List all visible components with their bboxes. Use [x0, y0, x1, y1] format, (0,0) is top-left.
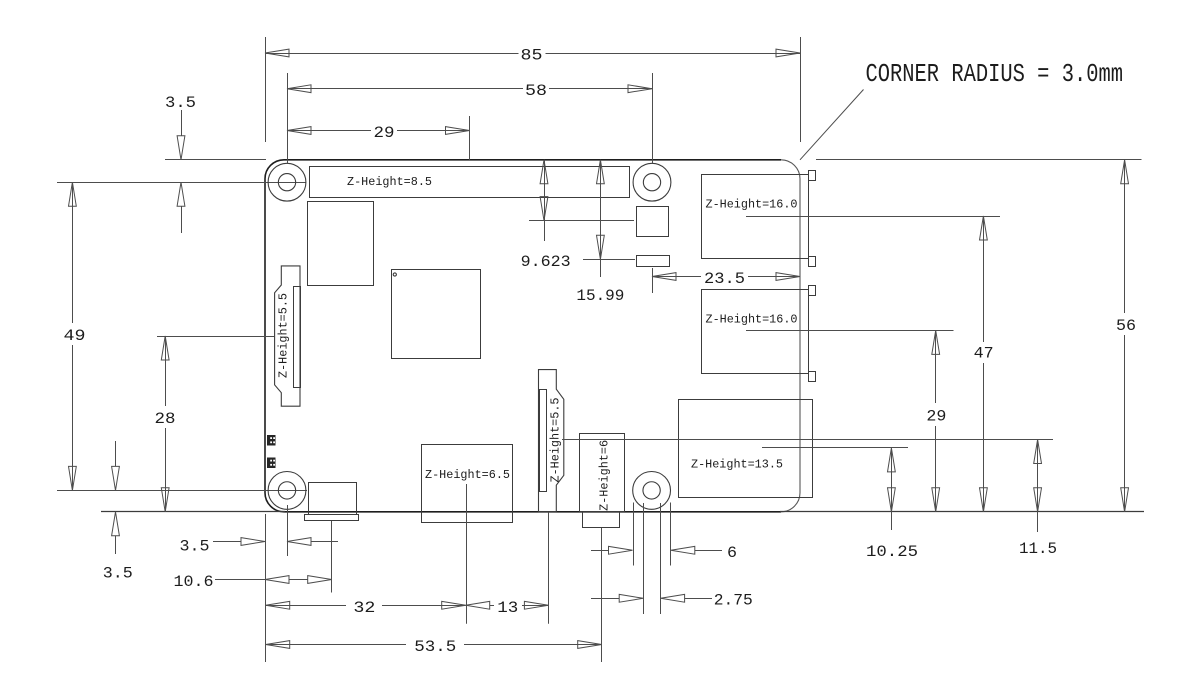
svg-text:23.5: 23.5 [704, 270, 745, 288]
svg-text:53.5: 53.5 [414, 638, 456, 656]
svg-text:15.99: 15.99 [576, 287, 624, 305]
svg-text:Z-Height=16.0: Z-Height=16.0 [706, 198, 798, 212]
svg-text:Z-Height=8.5: Z-Height=8.5 [347, 175, 432, 189]
svg-text:Z-Height=16.0: Z-Height=16.0 [706, 313, 798, 327]
svg-text:13: 13 [497, 599, 518, 617]
svg-text:9.623: 9.623 [521, 253, 571, 271]
svg-text:85: 85 [521, 46, 543, 64]
svg-text:2.75: 2.75 [714, 592, 753, 610]
svg-text:Z-Height=6: Z-Height=6 [597, 440, 611, 511]
svg-text:CORNER RADIUS = 3.0mm: CORNER RADIUS = 3.0mm [866, 59, 1124, 89]
svg-text:29: 29 [374, 124, 395, 142]
svg-text:47: 47 [974, 345, 994, 363]
svg-text:56: 56 [1116, 317, 1136, 335]
svg-text:10.6: 10.6 [174, 573, 214, 591]
svg-text:3.5: 3.5 [103, 565, 133, 583]
svg-text:Z-Height=5.5: Z-Height=5.5 [277, 293, 291, 378]
svg-text:11.5: 11.5 [1019, 540, 1057, 558]
svg-text:Z-Height=13.5: Z-Height=13.5 [691, 458, 783, 472]
svg-text:29: 29 [926, 408, 946, 426]
svg-text:58: 58 [525, 82, 547, 100]
svg-text:28: 28 [155, 410, 176, 428]
svg-text:Z-Height=5.5: Z-Height=5.5 [549, 398, 563, 483]
svg-text:32: 32 [353, 599, 375, 617]
svg-text:49: 49 [64, 327, 86, 345]
svg-text:3.5: 3.5 [165, 94, 196, 112]
svg-text:10.25: 10.25 [866, 543, 918, 561]
svg-text:Z-Height=6.5: Z-Height=6.5 [425, 468, 510, 482]
svg-text:3.5: 3.5 [180, 537, 210, 555]
svg-text:6: 6 [727, 544, 737, 562]
